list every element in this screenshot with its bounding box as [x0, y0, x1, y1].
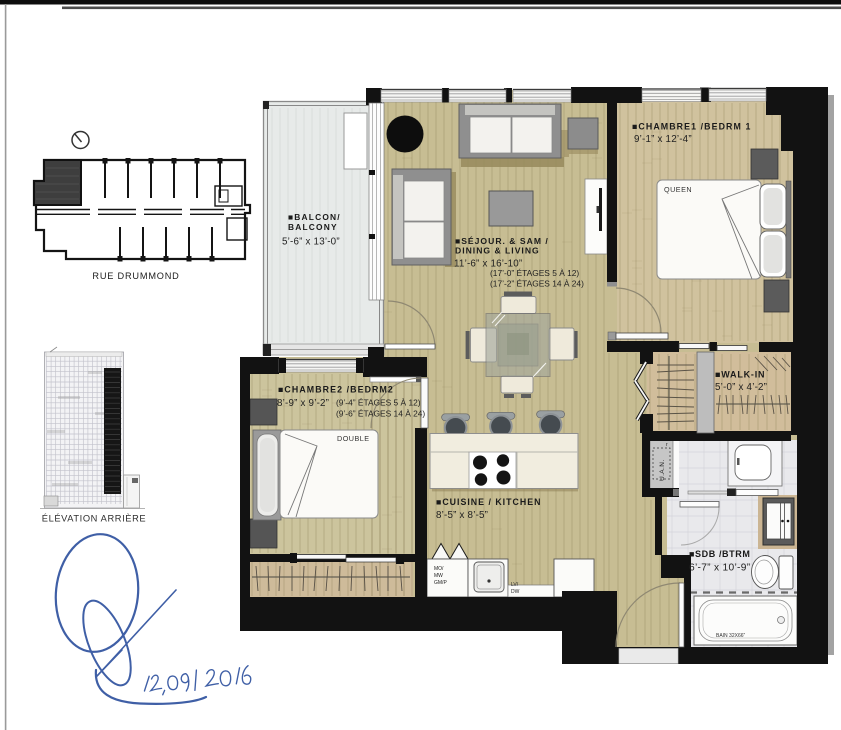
svg-text:(17’-0” ÉTAGES 5 À 12): (17’-0” ÉTAGES 5 À 12): [490, 268, 579, 278]
svg-text:6’-7” x 10’-9”: 6’-7” x 10’-9”: [689, 563, 751, 574]
svg-text:BAIN 32X66”: BAIN 32X66”: [716, 633, 746, 639]
svg-text:MW: MW: [434, 573, 443, 579]
svg-text:QUEEN: QUEEN: [664, 185, 692, 194]
svg-text:DINING & LIVING: DINING & LIVING: [455, 246, 540, 256]
svg-text:DW: DW: [511, 589, 520, 595]
svg-text:■BALCON/: ■BALCON/: [288, 212, 341, 222]
svg-text:U.A.N.: U.A.N.: [659, 459, 666, 481]
svg-text:RUE DRUMMOND: RUE DRUMMOND: [92, 271, 179, 281]
svg-text:GM/P: GM/P: [434, 580, 447, 586]
svg-text:5’-0” x 4’-2”: 5’-0” x 4’-2”: [715, 382, 767, 393]
svg-text:8’-9” x 9’-2”: 8’-9” x 9’-2”: [277, 398, 329, 409]
svg-text:■CUISINE / KITCHEN: ■CUISINE / KITCHEN: [436, 497, 541, 507]
svg-text:(9’-4” ÉTAGES 5 À 12): (9’-4” ÉTAGES 5 À 12): [336, 398, 421, 408]
svg-text:9’-1” x 12’-4”: 9’-1” x 12’-4”: [634, 134, 692, 145]
svg-text:ÉLÉVATION ARRIÈRE: ÉLÉVATION ARRIÈRE: [42, 514, 146, 524]
svg-text:DOUBLE: DOUBLE: [337, 434, 370, 443]
svg-text:BALCONY: BALCONY: [288, 222, 338, 232]
svg-text:(17’-2” ÉTAGES 14 À 24): (17’-2” ÉTAGES 14 À 24): [490, 279, 584, 289]
svg-text:■SÉJOUR. & SAM /: ■SÉJOUR. & SAM /: [455, 236, 549, 246]
svg-text:■CHAMBRE2 /BEDRM2: ■CHAMBRE2 /BEDRM2: [278, 385, 394, 395]
svg-text:LV/: LV/: [511, 582, 519, 588]
svg-text:5’-6” x 13’-0”: 5’-6” x 13’-0”: [282, 237, 340, 248]
svg-text:8’-5” x 8’-5”: 8’-5” x 8’-5”: [436, 510, 488, 521]
svg-text:■SDB /BTRM: ■SDB /BTRM: [689, 549, 750, 559]
svg-text:MO/: MO/: [434, 566, 444, 572]
svg-text:(9’-6” ÉTAGES 14 À 24): (9’-6” ÉTAGES 14 À 24): [336, 409, 425, 419]
svg-text:■CHAMBRE1 /BEDRM 1: ■CHAMBRE1 /BEDRM 1: [632, 122, 751, 132]
svg-text:■WALK-IN: ■WALK-IN: [715, 370, 765, 380]
